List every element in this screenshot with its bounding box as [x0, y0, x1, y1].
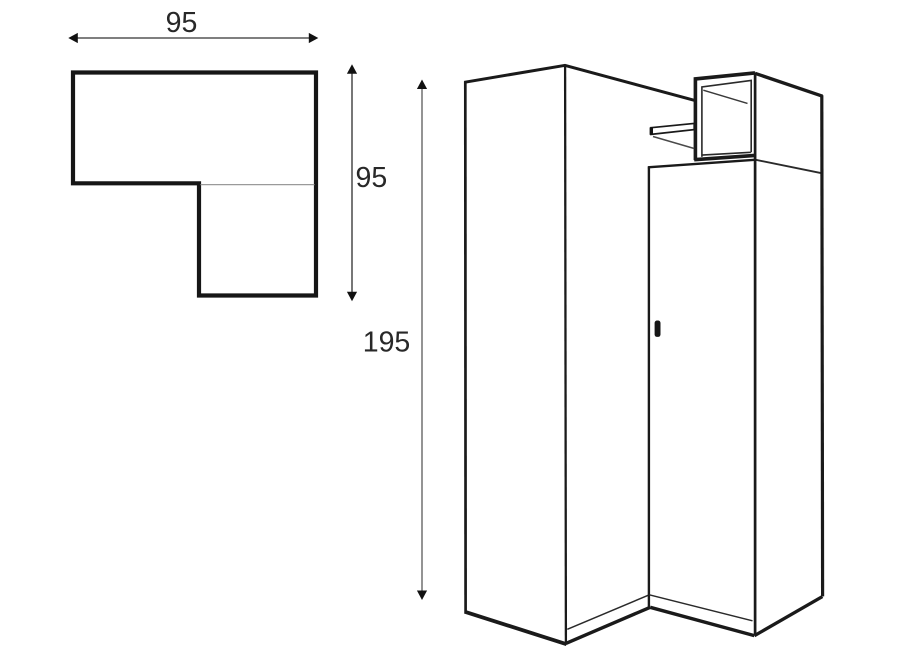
svg-text:195: 195 [363, 327, 411, 359]
svg-text:95: 95 [166, 7, 198, 39]
svg-text:95: 95 [356, 162, 388, 194]
